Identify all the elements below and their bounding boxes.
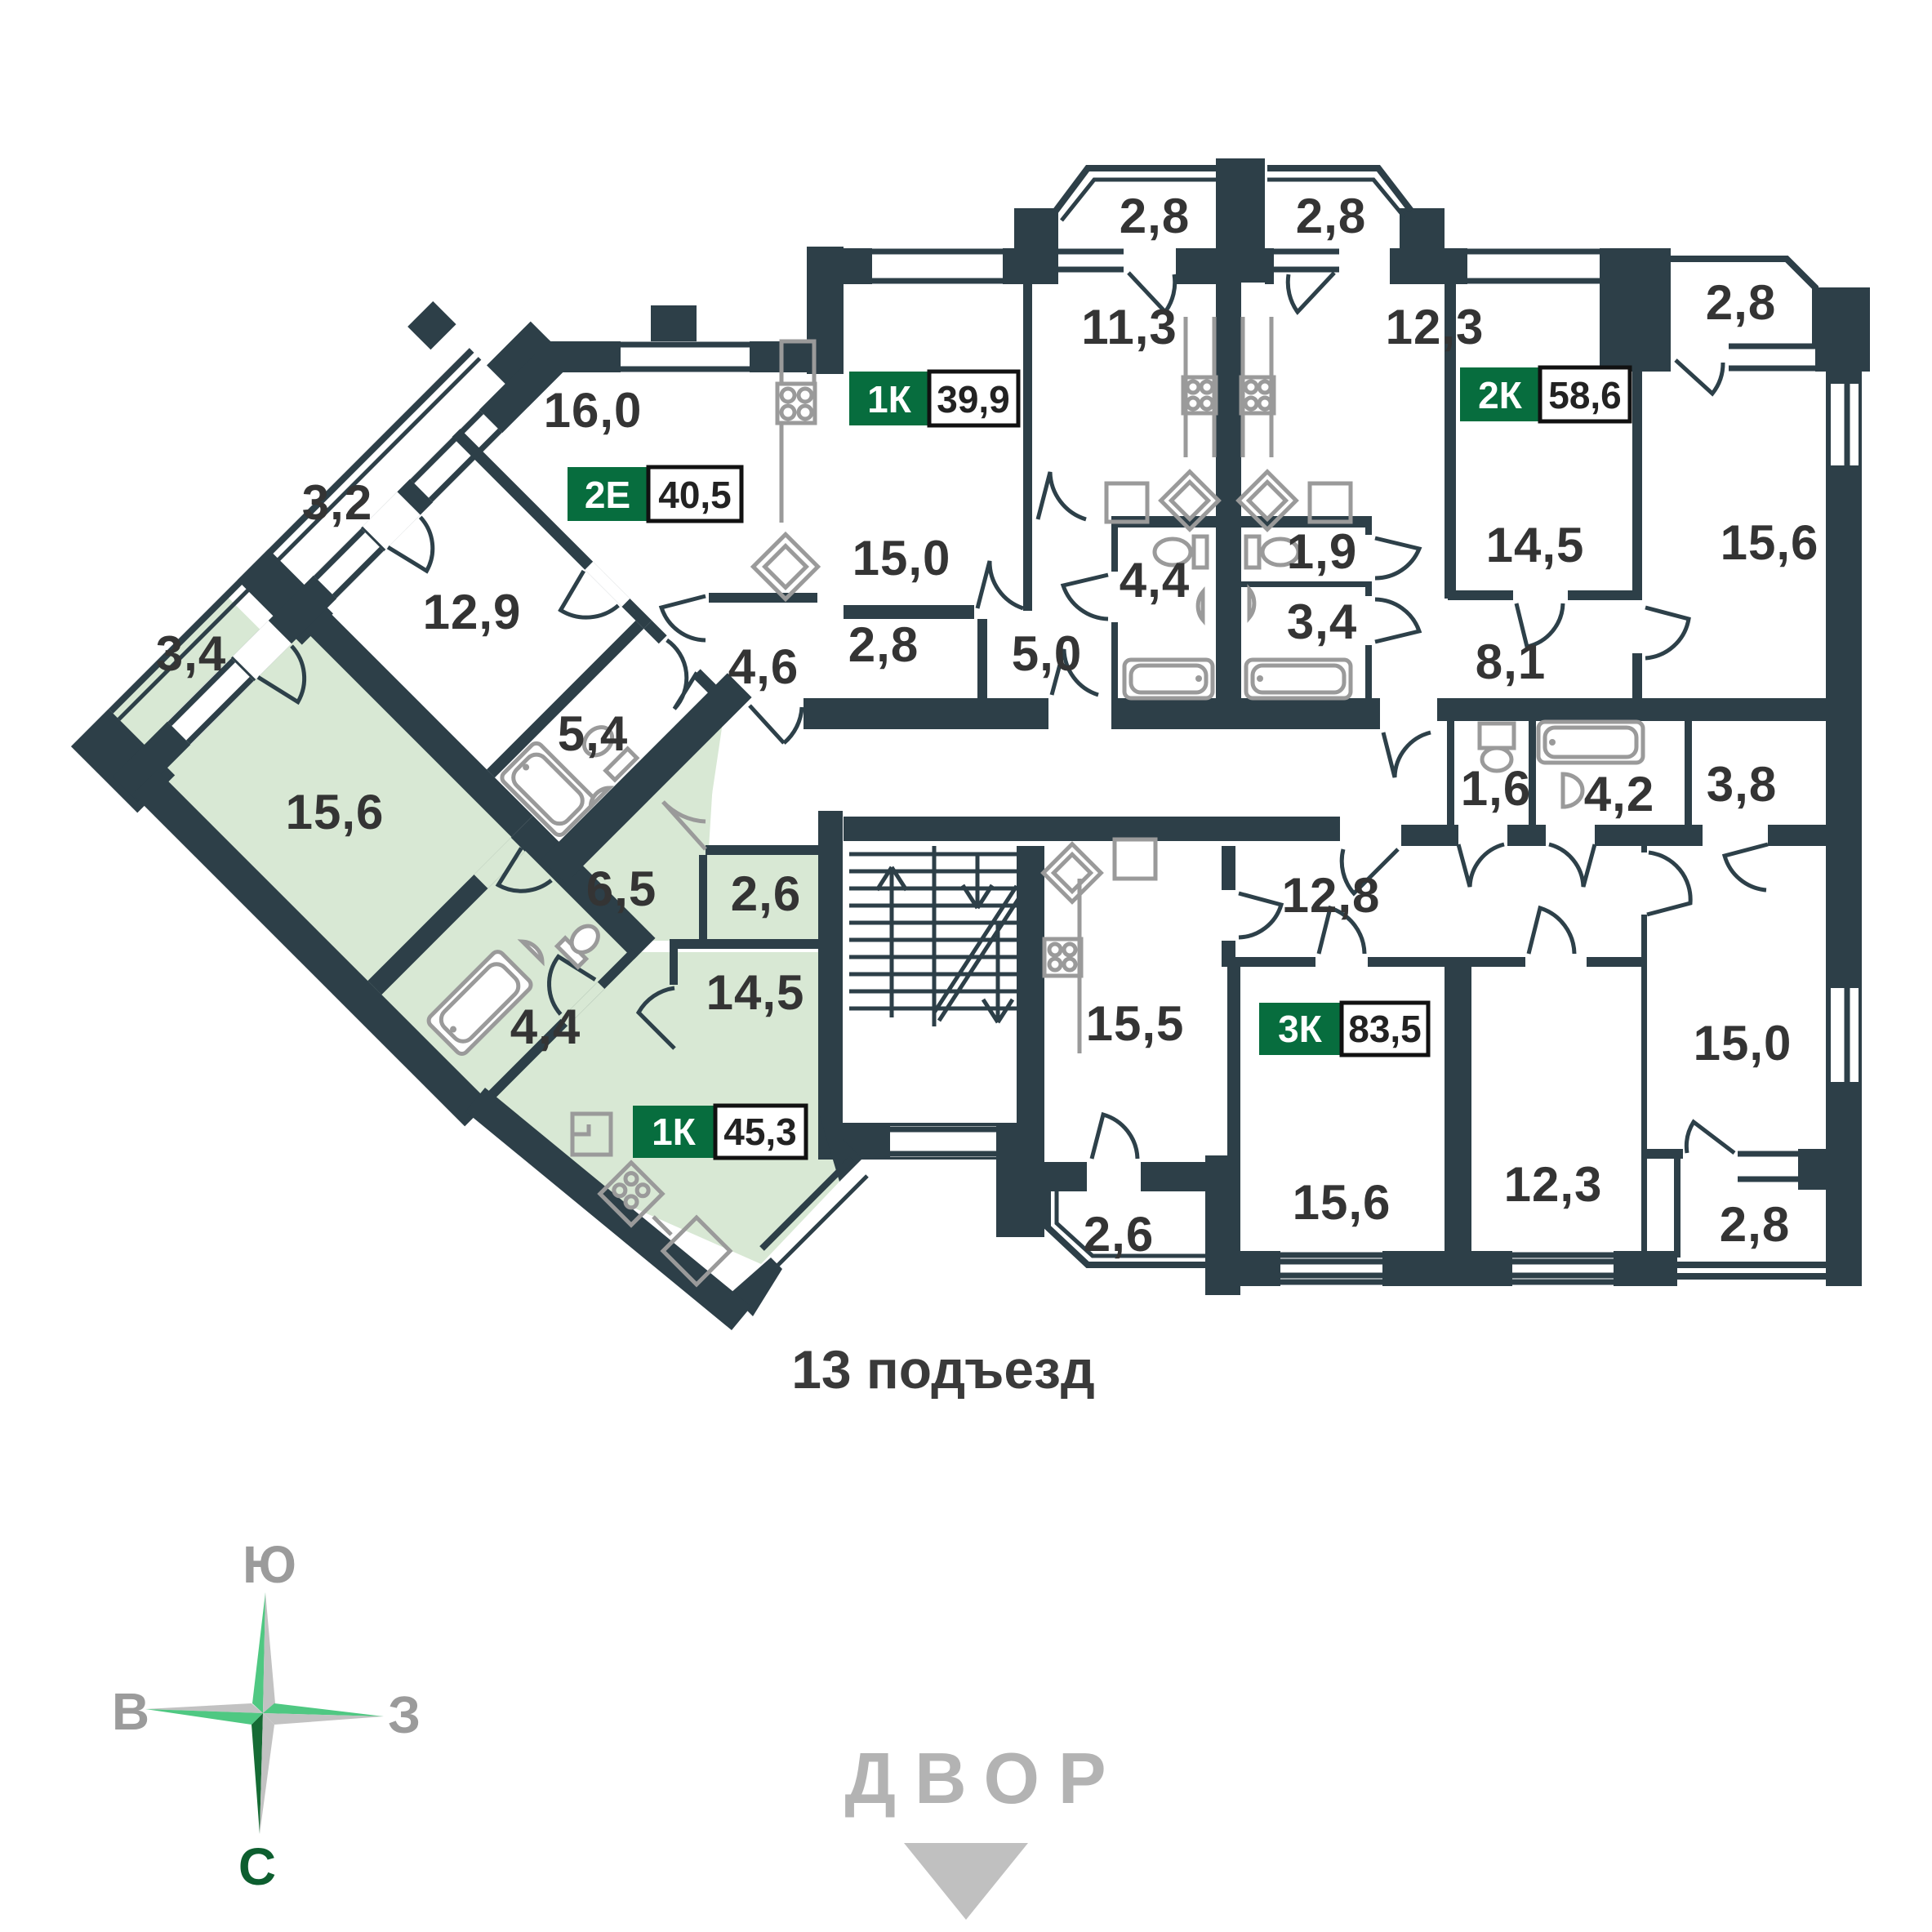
svg-text:2,8: 2,8	[848, 617, 919, 672]
svg-text:2Е: 2Е	[585, 474, 630, 516]
svg-text:12,3: 12,3	[1386, 300, 1485, 354]
svg-text:2,6: 2,6	[1084, 1207, 1154, 1262]
svg-text:45,3: 45,3	[723, 1111, 797, 1153]
svg-text:11,3: 11,3	[1081, 300, 1177, 354]
svg-text:15,6: 15,6	[1721, 515, 1819, 570]
svg-text:12,9: 12,9	[423, 585, 522, 639]
svg-text:1,6: 1,6	[1461, 761, 1531, 816]
svg-text:15,0: 15,0	[852, 531, 951, 585]
svg-text:В: В	[112, 1682, 149, 1741]
svg-text:4,6: 4,6	[728, 639, 799, 694]
svg-text:40,5: 40,5	[658, 474, 732, 516]
svg-text:3,2: 3,2	[302, 475, 372, 530]
svg-text:12,3: 12,3	[1504, 1157, 1603, 1212]
svg-text:2,8: 2,8	[1296, 189, 1366, 243]
svg-text:6,5: 6,5	[586, 861, 657, 916]
svg-text:4,4: 4,4	[1120, 553, 1190, 608]
svg-text:16,0: 16,0	[544, 383, 643, 438]
svg-text:83,5: 83,5	[1348, 1008, 1422, 1050]
svg-text:З: З	[388, 1685, 421, 1744]
svg-text:15,6: 15,6	[286, 785, 385, 839]
svg-text:15,0: 15,0	[1694, 1016, 1792, 1071]
svg-text:4,2: 4,2	[1584, 767, 1654, 821]
svg-text:14,5: 14,5	[706, 965, 805, 1020]
svg-text:1К: 1К	[867, 378, 912, 421]
svg-text:1К: 1К	[652, 1111, 697, 1153]
svg-text:5,4: 5,4	[558, 706, 628, 761]
svg-text:2К: 2К	[1478, 374, 1523, 416]
svg-text:С: С	[238, 1837, 276, 1896]
svg-text:ДВОР: ДВОР	[844, 1738, 1124, 1818]
svg-text:3,4: 3,4	[156, 626, 226, 681]
svg-text:2,8: 2,8	[1706, 275, 1776, 330]
svg-text:2,8: 2,8	[1720, 1197, 1790, 1252]
svg-text:5,0: 5,0	[1012, 626, 1082, 681]
svg-text:Ю: Ю	[243, 1535, 296, 1594]
svg-text:2,6: 2,6	[731, 866, 801, 921]
svg-text:14,5: 14,5	[1486, 518, 1585, 572]
svg-text:4,4: 4,4	[510, 999, 581, 1054]
svg-text:2,8: 2,8	[1120, 189, 1190, 243]
svg-text:13 подъезд: 13 подъезд	[791, 1339, 1095, 1400]
svg-text:12,8: 12,8	[1282, 868, 1381, 923]
svg-text:39,9: 39,9	[937, 378, 1010, 421]
svg-text:8,1: 8,1	[1476, 634, 1546, 689]
svg-text:3,8: 3,8	[1707, 757, 1777, 812]
svg-text:3К: 3К	[1278, 1008, 1323, 1050]
svg-text:15,6: 15,6	[1293, 1175, 1391, 1230]
svg-text:3,4: 3,4	[1287, 594, 1357, 649]
svg-text:58,6: 58,6	[1548, 374, 1622, 416]
svg-text:1,9: 1,9	[1287, 524, 1357, 579]
svg-text:15,5: 15,5	[1086, 996, 1185, 1051]
